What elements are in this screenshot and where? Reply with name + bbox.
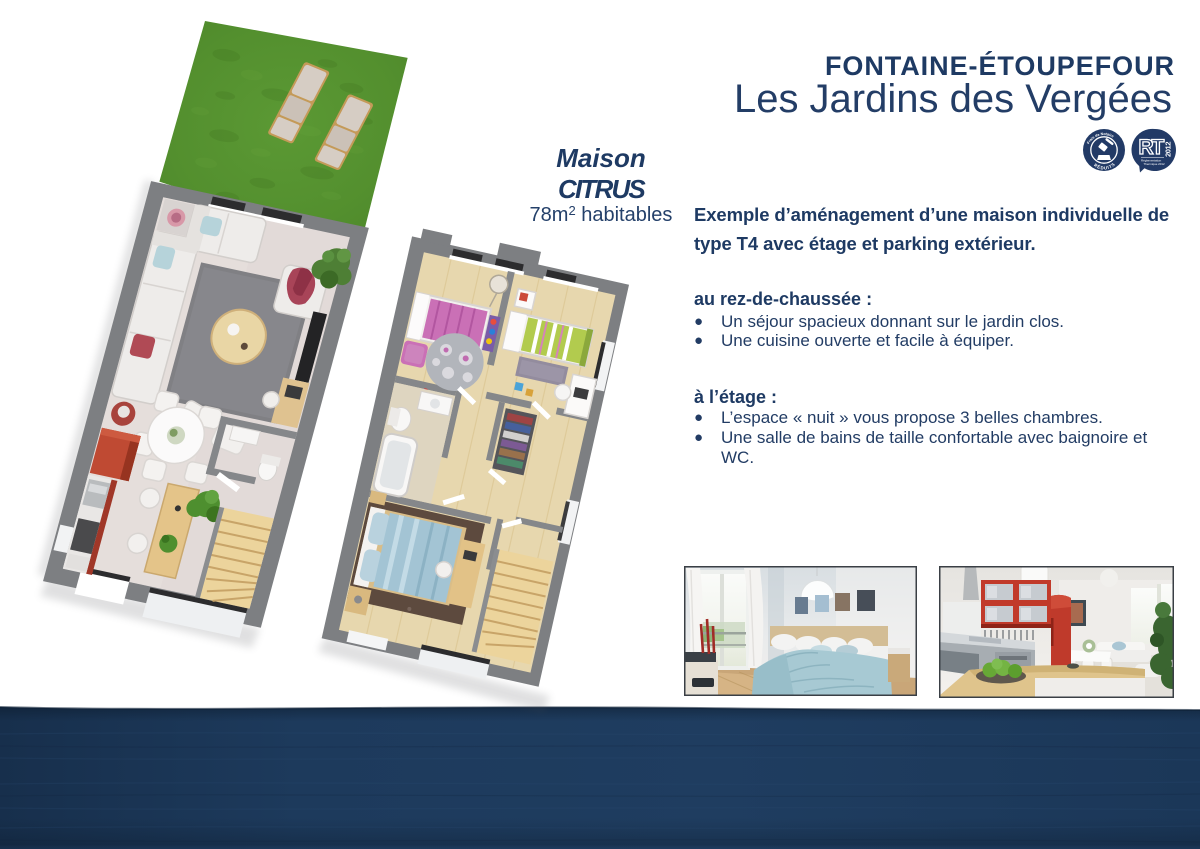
svg-text:2012: 2012	[1164, 142, 1173, 157]
svg-text:RT: RT	[1139, 136, 1165, 159]
svg-text:Thermique 2012: Thermique 2012	[1144, 162, 1165, 166]
